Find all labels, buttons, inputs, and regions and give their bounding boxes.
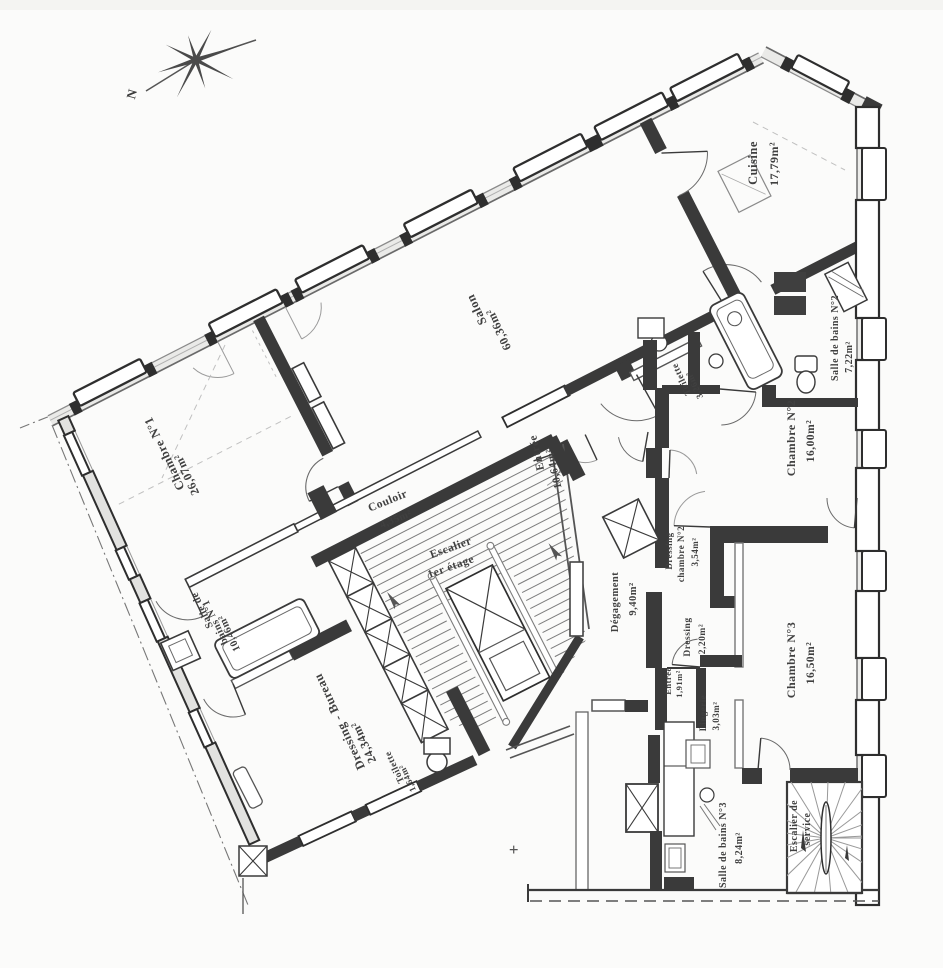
svg-text:1,91m²: 1,91m² — [674, 670, 684, 698]
svg-text:Dressing: Dressing — [664, 532, 674, 569]
svg-text:8,24m²: 8,24m² — [734, 832, 745, 864]
svg-text:Salle de bains N°2: Salle de bains N°2 — [830, 295, 841, 381]
svg-text:Entrée: Entrée — [663, 667, 673, 695]
svg-text:9,40m²: 9,40m² — [628, 582, 639, 615]
svg-text:Lingerie: Lingerie — [698, 695, 708, 732]
svg-text:Dégagement: Dégagement — [610, 572, 621, 632]
svg-text:Chambre N°3: Chambre N°3 — [784, 622, 798, 698]
svg-text:Escalier de: Escalier de — [789, 800, 800, 852]
svg-text:3,54m²: 3,54m² — [690, 538, 700, 567]
svg-text:2,20m²: 2,20m² — [698, 624, 708, 654]
svg-text:chambre N°2: chambre N°2 — [676, 526, 686, 582]
svg-text:+: + — [509, 840, 519, 859]
svg-text:16,00m²: 16,00m² — [805, 420, 817, 462]
svg-text:Cuisine: Cuisine — [746, 141, 760, 185]
svg-text:7,22m²: 7,22m² — [844, 341, 855, 373]
svg-text:service: service — [802, 812, 813, 845]
svg-text:3,03m²: 3,03m² — [711, 702, 721, 731]
svg-text:16,50m²: 16,50m² — [805, 642, 817, 684]
svg-text:17,79m²: 17,79m² — [767, 142, 781, 186]
svg-text:Dressing: Dressing — [683, 617, 693, 656]
svg-text:Salle de bains N°3: Salle de bains N°3 — [718, 802, 729, 888]
svg-text:Chambre N°2: Chambre N°2 — [784, 400, 798, 476]
